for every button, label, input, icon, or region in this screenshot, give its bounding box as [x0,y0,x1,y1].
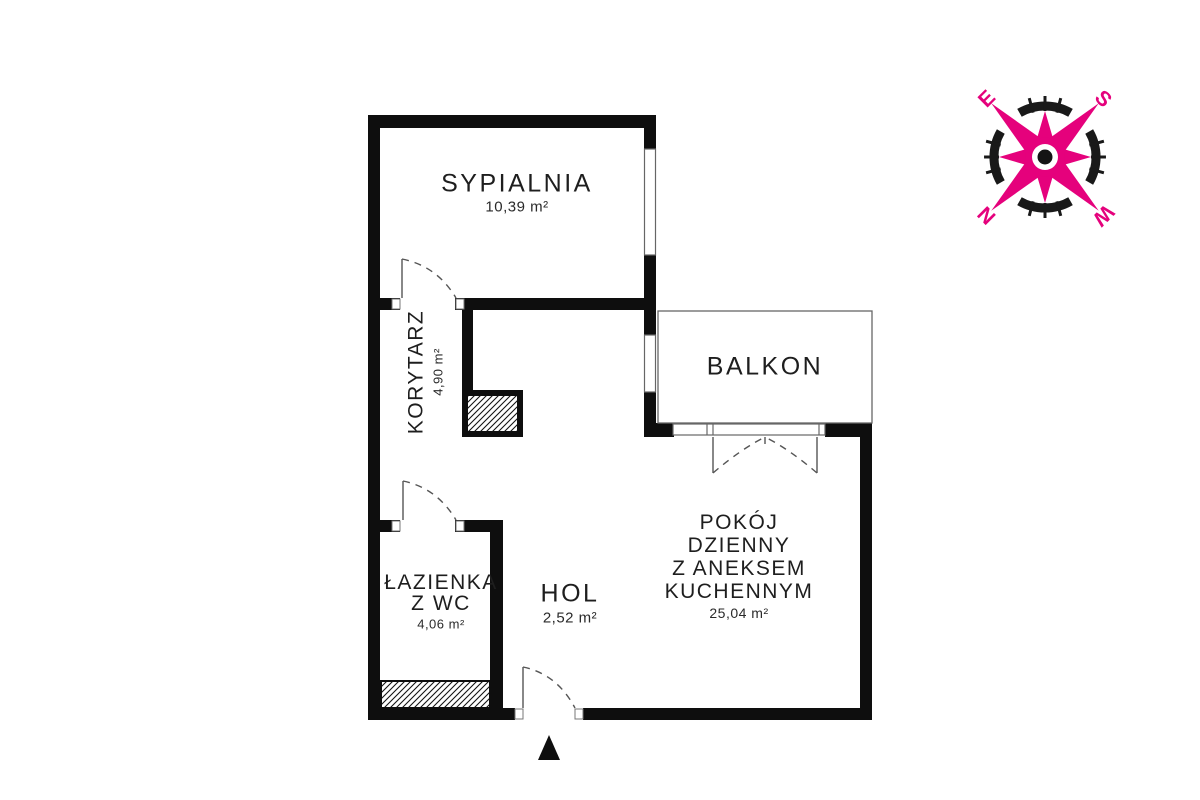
room-label-balkon: BALKON [707,353,823,382]
room-area-lazienka: 4,06 m² [417,617,465,632]
wall-bedroom-right-upper [644,115,656,149]
wall-right [860,423,872,720]
floor-plan-drawing: N E S W [0,0,1200,800]
shaft-corridor [465,393,520,434]
wall-balcony-left [644,392,656,423]
room-area-hol: 2,52 m² [543,610,597,627]
windows [645,149,826,435]
door-swing-bedroom [402,259,456,298]
room-label-sypialnia: SYPIALNIA [441,170,593,199]
room-label-pokoj-line1: POKÓJ [700,511,779,535]
wall-bathroom-right [490,520,503,710]
wall-left [368,115,380,720]
wall-bedroom-right-mid [644,255,656,335]
window-balcony-door-frame [673,424,825,435]
door-swing-entrance [523,667,575,708]
room-area-pokoj: 25,04 m² [709,605,768,621]
door-swing-balcony-left [713,437,765,473]
room-area-sypialnia: 10,39 m² [485,199,548,216]
entrance-arrow [538,735,560,760]
compass-rose: N E S W [913,25,1178,290]
wall-bedroom-bottom [455,298,644,310]
room-label-pokoj-line3: Z ANEKSEM [672,557,806,581]
room-label-pokoj-line4: KUCHENNYM [665,580,814,604]
room-label-pokoj-line2: DZIENNY [688,534,791,558]
room-label-lazienka-line2: Z WC [411,592,471,616]
door-swing-bathroom [403,481,456,520]
window-bedroom [645,149,656,255]
wall-corridor-right [462,310,473,393]
room-label-hol: HOL [541,580,600,609]
shaft-bathroom [381,681,490,708]
door-swing-balcony-right [765,437,817,473]
wall-balcony-bottom-right [825,423,861,437]
window-living-balcony [645,335,656,392]
room-label-korytarz-block: KORYTARZ 4,90 m² [405,310,446,434]
wall-bottom-right [583,708,872,720]
room-label-korytarz: KORYTARZ [405,310,429,434]
wall-top [368,115,656,128]
wall-balcony-bottom-left [644,423,674,437]
room-area-korytarz: 4,90 m² [431,310,446,434]
floor-plan-page: N E S W SYPIALNIA 10,39 m² KORYTARZ 4,90… [0,0,1200,800]
